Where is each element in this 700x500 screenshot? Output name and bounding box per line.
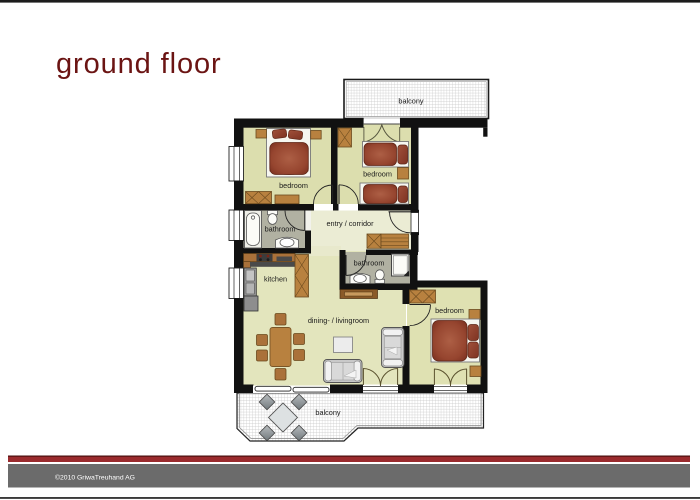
svg-text:bathroom: bathroom — [265, 225, 296, 234]
svg-text:balcony: balcony — [398, 97, 424, 106]
svg-text:entry / corridor: entry / corridor — [326, 219, 374, 228]
svg-text:©2010 GriwaTreuhand AG: ©2010 GriwaTreuhand AG — [55, 474, 135, 482]
svg-text:bathroom: bathroom — [354, 259, 385, 268]
svg-text:dining- / livingroom: dining- / livingroom — [308, 316, 369, 325]
svg-text:bedroom: bedroom — [435, 306, 464, 315]
svg-text:bedroom: bedroom — [279, 181, 308, 190]
svg-text:ground floor: ground floor — [56, 48, 222, 80]
svg-text:bedroom: bedroom — [363, 170, 392, 179]
svg-text:kitchen: kitchen — [264, 275, 287, 284]
svg-text:balcony: balcony — [315, 408, 341, 417]
